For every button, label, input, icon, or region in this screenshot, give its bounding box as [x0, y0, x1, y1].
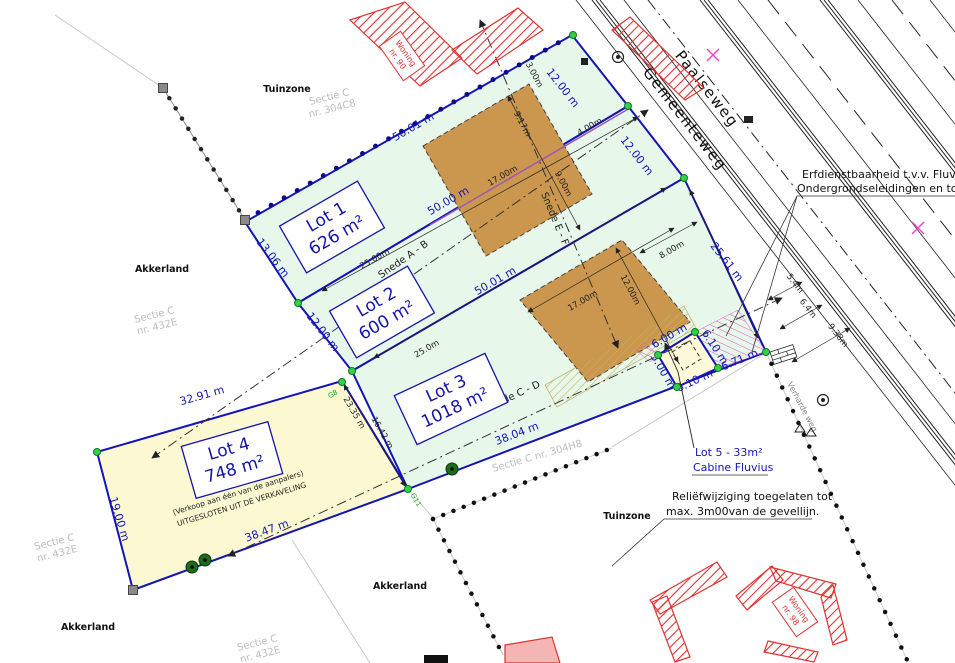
svg-text:max. 3m00van de gevellijn.: max. 3m00van de gevellijn. — [666, 505, 819, 518]
survey-label-g11: G11 — [409, 492, 423, 508]
svg-text:Ondergrondseleidingen en toega: Ondergrondseleidingen en toegang o — [797, 182, 955, 195]
akkerland-bottom-center: Akkerland — [373, 581, 427, 592]
survey-plan: Paalseweg Gemeenteweg Verharde weg Snede… — [0, 0, 955, 663]
svg-text:Erfdienstbaarheid t.v.v. Fluvi: Erfdienstbaarheid t.v.v. Fluvius — [802, 168, 955, 181]
dim-54: 5.4m — [784, 272, 805, 295]
magenta-cross-markers — [707, 49, 924, 234]
plan-canvas: Paalseweg Gemeenteweg Verharde weg Snede… — [0, 0, 955, 663]
woning-bottom-label: Woning nr. 98 — [772, 587, 817, 636]
bottom-edge-structure — [424, 655, 448, 663]
dim-3291: 32.91 m — [178, 383, 226, 408]
akkerland-bottom-left: Akkerland — [61, 622, 115, 633]
svg-text:Cabine Fluvius: Cabine Fluvius — [693, 461, 774, 474]
tuinzone-bottom: Tuinzone — [603, 511, 650, 522]
side-road-label: Verharde weg — [785, 380, 819, 433]
dim-64: 6.4m — [797, 297, 818, 320]
annotation-relief: Reliëfwijziging toegelaten tot max. 3m00… — [612, 490, 833, 566]
annotation-erfdienstbaarheid: Erfdienstbaarheid t.v.v. Fluvius Ondergr… — [726, 168, 955, 352]
svg-text:Reliëfwijziging toegelaten tot: Reliëfwijziging toegelaten tot — [672, 490, 833, 503]
akkerland-left: Akkerland — [135, 264, 189, 275]
tuinzone-top: Tuinzone — [263, 84, 310, 95]
svg-text:Lot 5 - 33m²: Lot 5 - 33m² — [695, 446, 763, 459]
